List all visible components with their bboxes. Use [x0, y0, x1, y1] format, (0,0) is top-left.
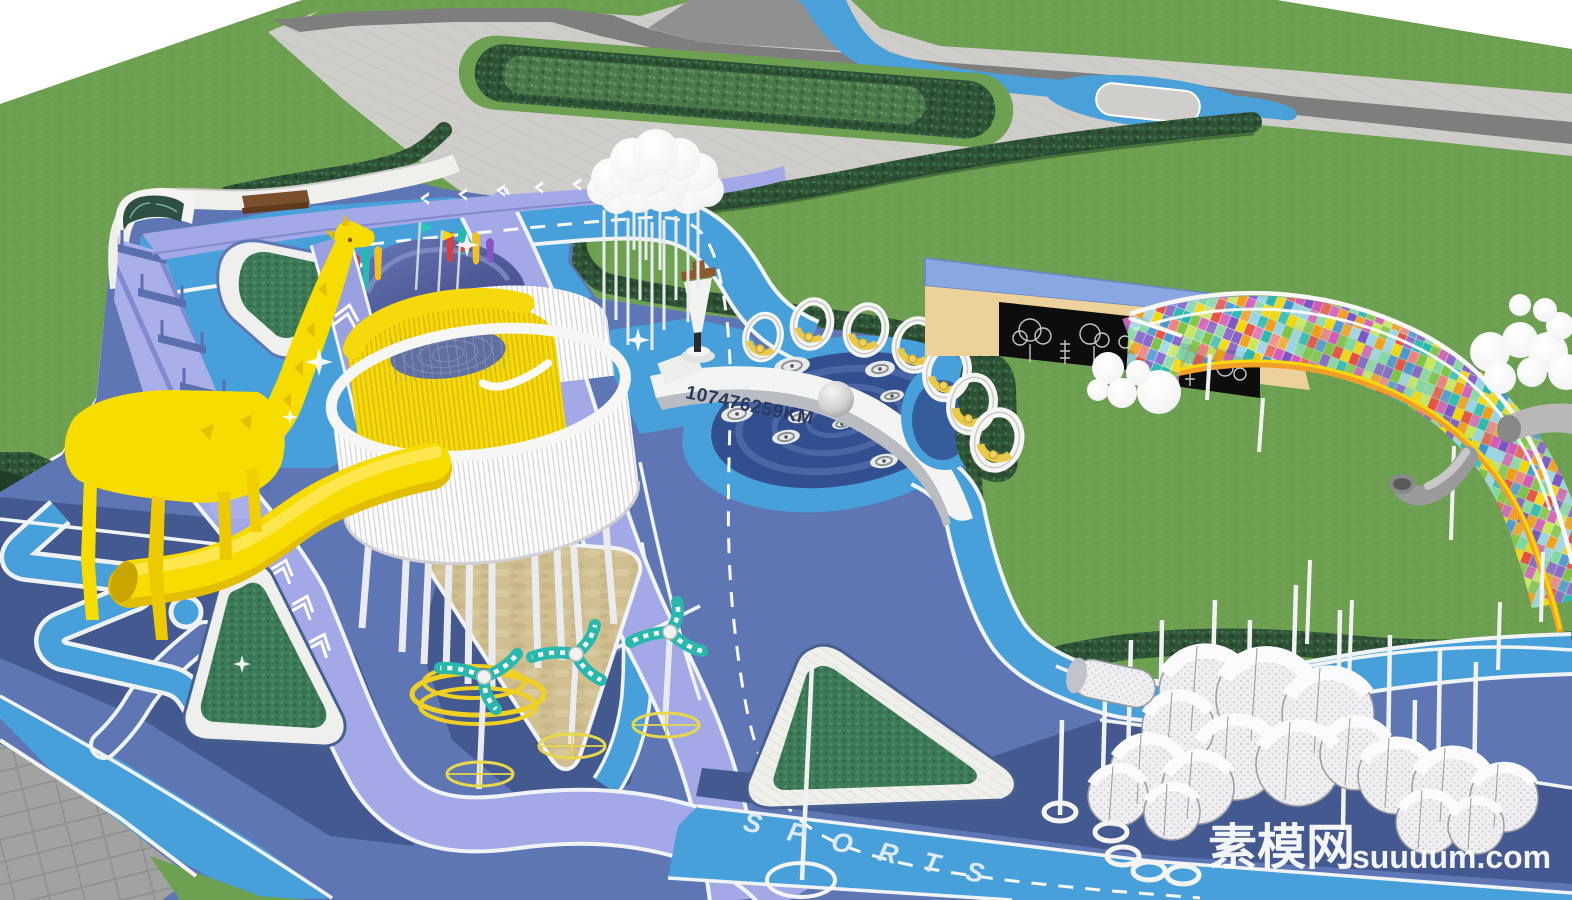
svg-text:suuuum.com: suuuum.com: [1352, 839, 1551, 875]
svg-text:素模网: 素模网: [1208, 821, 1355, 875]
